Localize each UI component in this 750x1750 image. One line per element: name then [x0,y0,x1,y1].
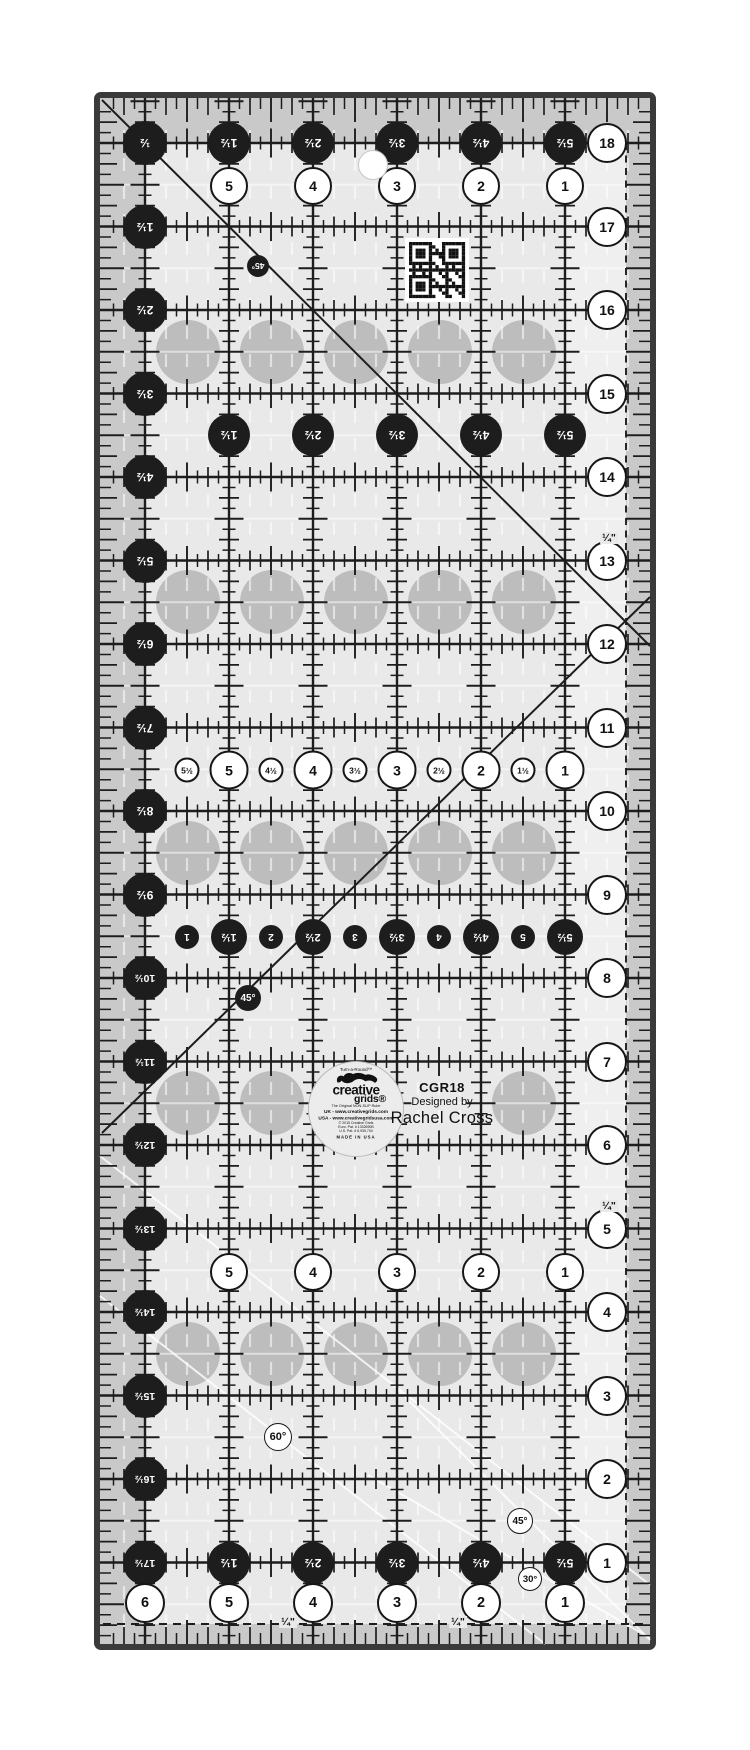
left-scale-circle: 11½ [123,1040,167,1084]
white-scale-circle: 2 [462,751,501,790]
black-scale-circle: 4½ [460,1542,502,1584]
logo-brand-bottom: grids® [354,1095,386,1103]
black-scale-circle: 5½ [544,414,586,456]
white-scale-circle: 1½ [511,758,536,783]
black-scale-circle: 2½ [295,919,331,955]
white-scale-circle: 3 [378,751,417,790]
black-scale-circle: 2½ [292,1542,334,1584]
left-scale-circle: ½ [123,121,167,165]
grid-lines [0,0,750,1750]
right-scale-circle: 5 [587,1209,627,1249]
left-scale-circle: 2½ [123,288,167,332]
right-scale-circle: 16 [587,290,627,330]
left-scale-circle: 10½ [123,956,167,1000]
white-scale-circle: 2 [462,1253,500,1291]
right-scale-circle: 12 [587,624,627,664]
left-scale-circle: 4½ [123,455,167,499]
white-scale-circle: 4 [294,1253,332,1291]
angle-45-marker: 45° [507,1508,533,1534]
right-scale-circle: 4 [587,1292,627,1332]
top-scale-circle: 4½ [460,122,502,164]
white-scale-circle: 5 [210,1253,248,1291]
top-scale-circle: 5½ [544,122,586,164]
black-scale-circle: 4½ [460,414,502,456]
right-scale-circle: 6 [587,1125,627,1165]
white-scale-circle: 4½ [259,758,284,783]
ruler-photo: ½1½2½3½4½5½6½7½8½9½10½11½12½13½14½15½16½… [0,0,750,1750]
white-scale-circle: 5 [209,1583,249,1623]
left-scale-circle: 1½ [123,205,167,249]
white-scale-circle: 1 [546,1253,584,1291]
top-scale-circle: 1½ [208,122,250,164]
black-scale-circle: 1 [175,925,199,949]
right-scale-circle: 11 [587,708,627,748]
angle-30-marker: 30° [518,1567,542,1591]
logo-patent-2: U.S. Pat. # 6,935,704 [339,1130,372,1134]
black-scale-circle: 4 [427,925,451,949]
right-scale-circle: 17 [587,207,627,247]
white-scale-circle: 2½ [427,758,452,783]
black-scale-circle: 1½ [208,1542,250,1584]
right-scale-circle: 7 [587,1042,627,1082]
left-scale-circle: 13½ [123,1207,167,1251]
white-scale-circle: 6 [125,1583,165,1623]
logo-patent-1: Euro. Pat. # 1332690B [338,1126,373,1130]
quarter-inch-label: ¼" [600,532,618,544]
angle-45-marker: 45° [235,985,261,1011]
left-scale-circle: 6½ [123,622,167,666]
right-scale-circle: 13 [587,541,627,581]
angle-45-marker: 45° [247,255,269,277]
quarter-inch-label: ¼" [600,1200,618,1212]
logo-usa-url: USA - www.creativegridsusa.com [318,1116,393,1122]
white-scale-circle: 3 [378,1253,416,1291]
quarter-inch-label: ¼" [449,1616,467,1628]
black-scale-circle: 3½ [376,414,418,456]
designer-name: Rachel Cross [388,1109,496,1128]
white-scale-circle: 5 [210,751,249,790]
black-scale-circle: 5½ [544,1542,586,1584]
product-model: CGR18 [388,1080,496,1095]
white-scale-circle: 5½ [175,758,200,783]
quarter-inch-label: ¼" [279,1616,297,1628]
right-scale-circle: 3 [587,1376,627,1416]
white-scale-circle: 4 [294,751,333,790]
white-scale-circle: 5 [210,167,248,205]
left-scale-circle: 17½ [123,1541,167,1585]
logo-uk-url: UK - www.creativegrids.com [324,1109,388,1115]
black-scale-circle: 3 [343,925,367,949]
white-scale-circle: 4 [294,167,332,205]
right-scale-circle: 2 [587,1459,627,1499]
right-scale-circle: 14 [587,457,627,497]
white-scale-circle: 3½ [343,758,368,783]
black-scale-circle: 1½ [208,414,250,456]
white-scale-circle: 2 [462,167,500,205]
right-scale-circle: 1 [587,1543,627,1583]
white-scale-circle: 1 [545,1583,585,1623]
left-scale-circle: 14½ [123,1290,167,1334]
logo-made-in: MADE IN USA [336,1135,375,1140]
designed-by-label: Designed by [388,1096,496,1108]
black-scale-circle: 2 [259,925,283,949]
top-scale-circle: 2½ [292,122,334,164]
logo-copyright: © 2015 Creative Grids [339,1122,374,1126]
black-scale-circle: 3½ [376,1542,418,1584]
right-scale-circle: 10 [587,791,627,831]
left-scale-circle: 15½ [123,1374,167,1418]
product-info: CGR18 Designed by Rachel Cross [388,1080,496,1128]
white-scale-circle: 2 [461,1583,501,1623]
right-scale-circle: 18 [587,123,627,163]
qr-code [405,238,469,302]
black-scale-circle: 5½ [547,919,583,955]
right-scale-circle: 8 [587,958,627,998]
left-scale-circle: 12½ [123,1123,167,1167]
left-scale-circle: 8½ [123,789,167,833]
black-scale-circle: 5 [511,925,535,949]
left-scale-circle: 9½ [123,873,167,917]
right-scale-circle: 9 [587,875,627,915]
white-scale-circle: 1 [546,751,585,790]
hanging-hole [358,150,388,180]
logo-subtitle: The Original NON-SLIP Ruler [331,1104,380,1109]
left-scale-circle: 3½ [123,372,167,416]
white-scale-circle: 1 [546,167,584,205]
left-scale-circle: 16½ [123,1457,167,1501]
angle-60-marker: 60° [264,1423,292,1451]
black-scale-circle: 3½ [379,919,415,955]
left-scale-circle: 5½ [123,539,167,583]
black-scale-circle: 4½ [463,919,499,955]
black-scale-circle: 2½ [292,414,334,456]
left-scale-circle: 7½ [123,706,167,750]
white-scale-circle: 3 [377,1583,417,1623]
right-scale-circle: 15 [587,374,627,414]
black-scale-circle: 1½ [211,919,247,955]
white-scale-circle: 4 [293,1583,333,1623]
